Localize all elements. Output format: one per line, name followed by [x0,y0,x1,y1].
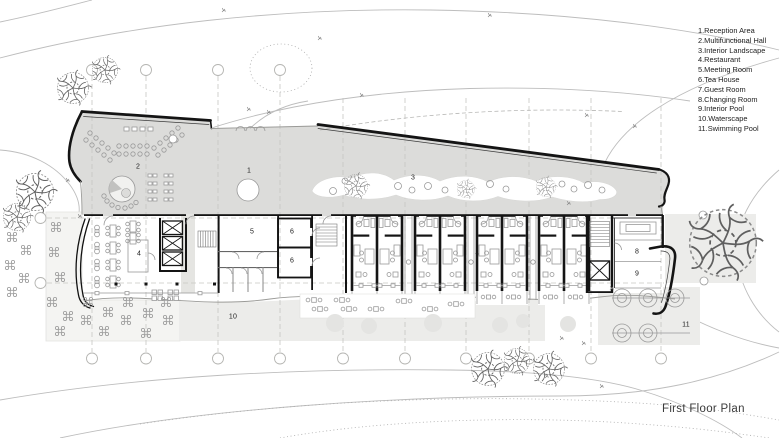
floor-plan-drawing [0,0,780,438]
reception-desk [237,179,259,201]
floor-plan-page: 1.Reception Area 2.Multifunctional Hall … [0,0,780,438]
